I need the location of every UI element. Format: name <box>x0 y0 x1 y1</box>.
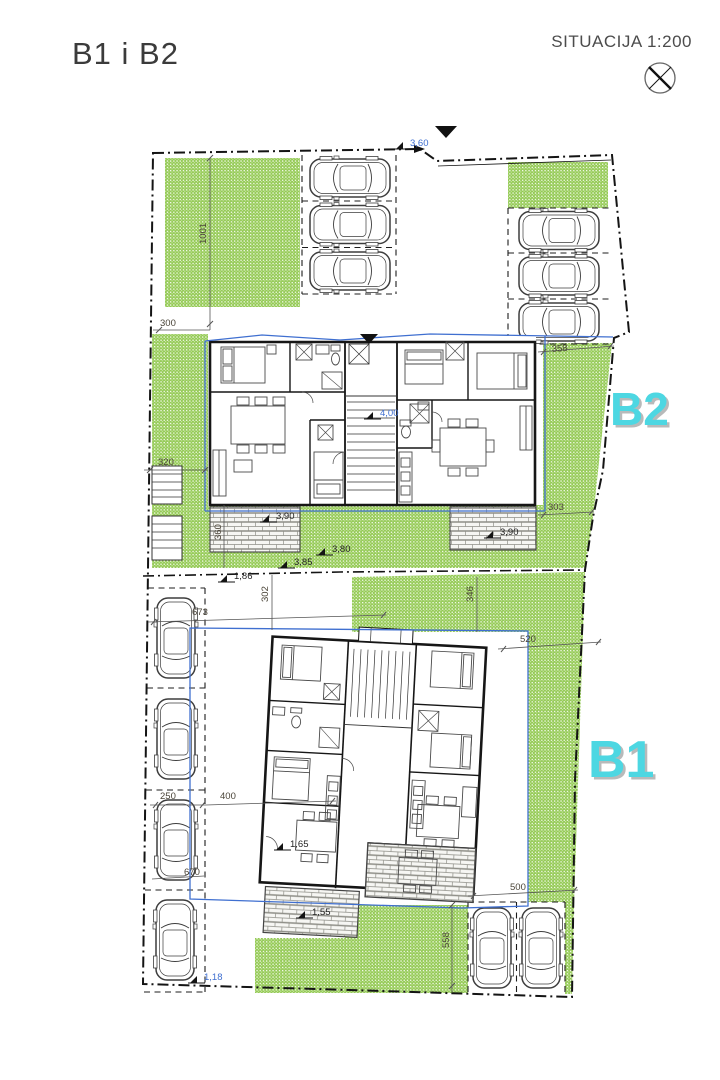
dimension-label-3-80: 3,80 <box>332 544 351 555</box>
dimension-label-303: 303 <box>548 502 564 513</box>
car-icon <box>519 209 599 253</box>
car-icon <box>310 203 390 247</box>
dimension-label-1-18: 1,18 <box>204 972 223 983</box>
dimension-label-670: 670 <box>184 867 200 878</box>
dimension-label-3-85: 3,85 <box>294 557 313 568</box>
dimension-label-346: 346 <box>465 586 476 602</box>
dimension-label-302: 302 <box>260 586 271 602</box>
site-plan-page: B1 i B2 SITUACIJA 1:200 B2 B1 <box>0 0 720 1080</box>
car-icon <box>153 900 197 980</box>
dimension-label-300: 300 <box>160 318 176 329</box>
north-icon <box>645 63 675 93</box>
level-marker-icon <box>394 142 411 149</box>
dimension-label-673: 673 <box>192 607 208 618</box>
car-icon <box>310 156 390 200</box>
entrance-arrow-icon <box>435 126 457 138</box>
terrace <box>365 843 476 903</box>
car-icon <box>154 699 198 779</box>
dimension-label-1-55: 1,55 <box>312 907 331 918</box>
car-icon <box>519 908 563 988</box>
dimension-label-1001: 1001 <box>198 223 209 244</box>
dimension-label-400: 400 <box>220 791 236 802</box>
car-icon <box>470 908 514 988</box>
dimension-label-500: 500 <box>510 882 526 893</box>
dimension-label-3-90: 3,90 <box>276 511 295 522</box>
car-icon <box>310 249 390 293</box>
dimension-label-1-86: 1,86 <box>234 571 253 582</box>
dimension-label-4-00: 4,00 <box>380 408 399 419</box>
dimension-label-360: 360 <box>213 524 224 540</box>
terrace <box>450 507 536 550</box>
dimension-label-320: 320 <box>158 457 174 468</box>
building-b1-plan <box>255 622 489 943</box>
dimension-label-358: 358 <box>551 343 568 355</box>
level-marker-icon <box>218 575 235 582</box>
dimension-label-558: 558 <box>441 932 452 948</box>
car-icon <box>519 254 599 298</box>
dimension-label-3-60: 3,60 <box>410 138 429 149</box>
site-plan-drawing: 3,60 1001 300 320 360 4,00 358 303 3,90 … <box>0 0 720 1080</box>
dimension-label-3-90: 3,90 <box>500 527 519 538</box>
dimension-label-250: 250 <box>160 791 176 802</box>
dimension-label-520: 520 <box>520 634 536 645</box>
dimension-label-1-65: 1,65 <box>290 839 309 850</box>
